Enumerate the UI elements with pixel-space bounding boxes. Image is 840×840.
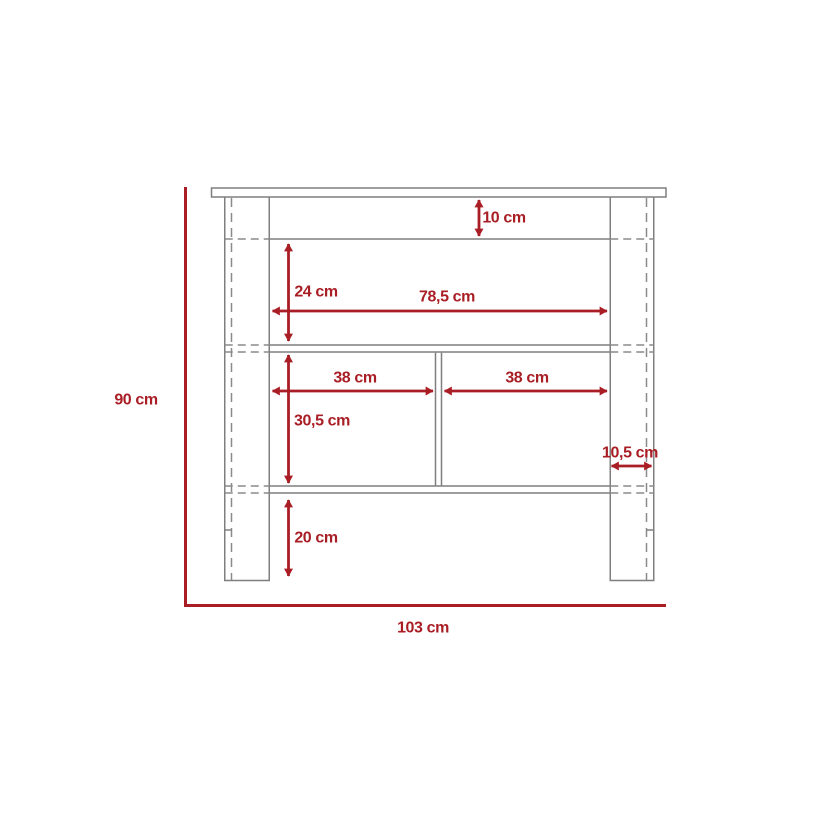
total-height-label: 90 cm <box>114 392 158 409</box>
diagram-canvas: 10 cm 24 cm 78,5 cm 38 cm 38 cm 30,5 cm … <box>0 0 840 840</box>
right-overhang-label: 10,5 cm <box>602 445 658 462</box>
countertop <box>212 188 667 197</box>
lower-section-height-label: 30,5 cm <box>294 413 350 430</box>
total-width-label: 103 cm <box>397 620 449 637</box>
upper-section-width-label: 78,5 cm <box>419 289 475 306</box>
overall-dimension-lines <box>186 187 667 606</box>
dimension-labels: 10 cm 24 cm 78,5 cm 38 cm 38 cm 30,5 cm … <box>114 210 658 637</box>
upper-section-height-label: 24 cm <box>294 284 338 301</box>
right-compartment-width-label: 38 cm <box>505 370 549 387</box>
furniture-dimension-drawing: 10 cm 24 cm 78,5 cm 38 cm 38 cm 30,5 cm … <box>0 0 840 840</box>
overall-height-width-dimension-line <box>186 187 667 606</box>
top-inset-label: 10 cm <box>482 210 526 227</box>
furniture-outline <box>212 188 667 581</box>
dimension-arrows <box>273 200 652 576</box>
leg-clearance-label: 20 cm <box>294 530 338 547</box>
left-compartment-width-label: 38 cm <box>333 370 377 387</box>
